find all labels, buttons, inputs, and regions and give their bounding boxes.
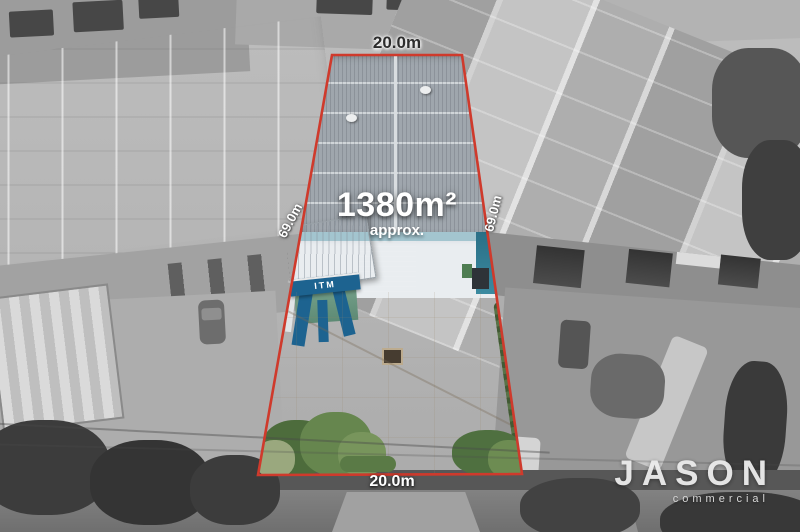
car-windshield <box>201 308 222 321</box>
roof-vent <box>346 114 357 122</box>
neighbor-greenhouse <box>0 283 124 433</box>
agency-brand: JASON <box>614 456 775 491</box>
roller-door <box>533 245 585 288</box>
area-qualifier: approx. <box>297 222 497 239</box>
aerial-property-photo: ITM 20.0m 69.0m 69.0m 20.0m 1380m² appro… <box>0 0 800 532</box>
trimmed-hedge <box>340 456 396 472</box>
green-bin <box>462 264 472 278</box>
junk-pile <box>588 352 666 421</box>
parked-car <box>198 299 226 344</box>
roof-vent <box>420 86 431 94</box>
skylight <box>9 9 54 37</box>
ac-unit <box>472 268 489 289</box>
skylight <box>316 0 373 15</box>
dimension-bottom: 20.0m <box>342 473 442 491</box>
dimension-top: 20.0m <box>347 33 447 53</box>
agency-watermark: JASON commercial <box>614 456 775 505</box>
area-annotation: 1380m² approx. <box>297 188 497 239</box>
driveway-crossover <box>332 492 480 532</box>
area-value: 1380m² <box>297 188 497 224</box>
trees-right-lower <box>742 140 800 260</box>
agency-tagline: commercial <box>614 493 775 505</box>
skylight <box>138 0 179 19</box>
skylight <box>72 0 124 32</box>
roller-door <box>718 255 761 289</box>
roller-door <box>626 249 673 287</box>
truck <box>558 319 591 369</box>
